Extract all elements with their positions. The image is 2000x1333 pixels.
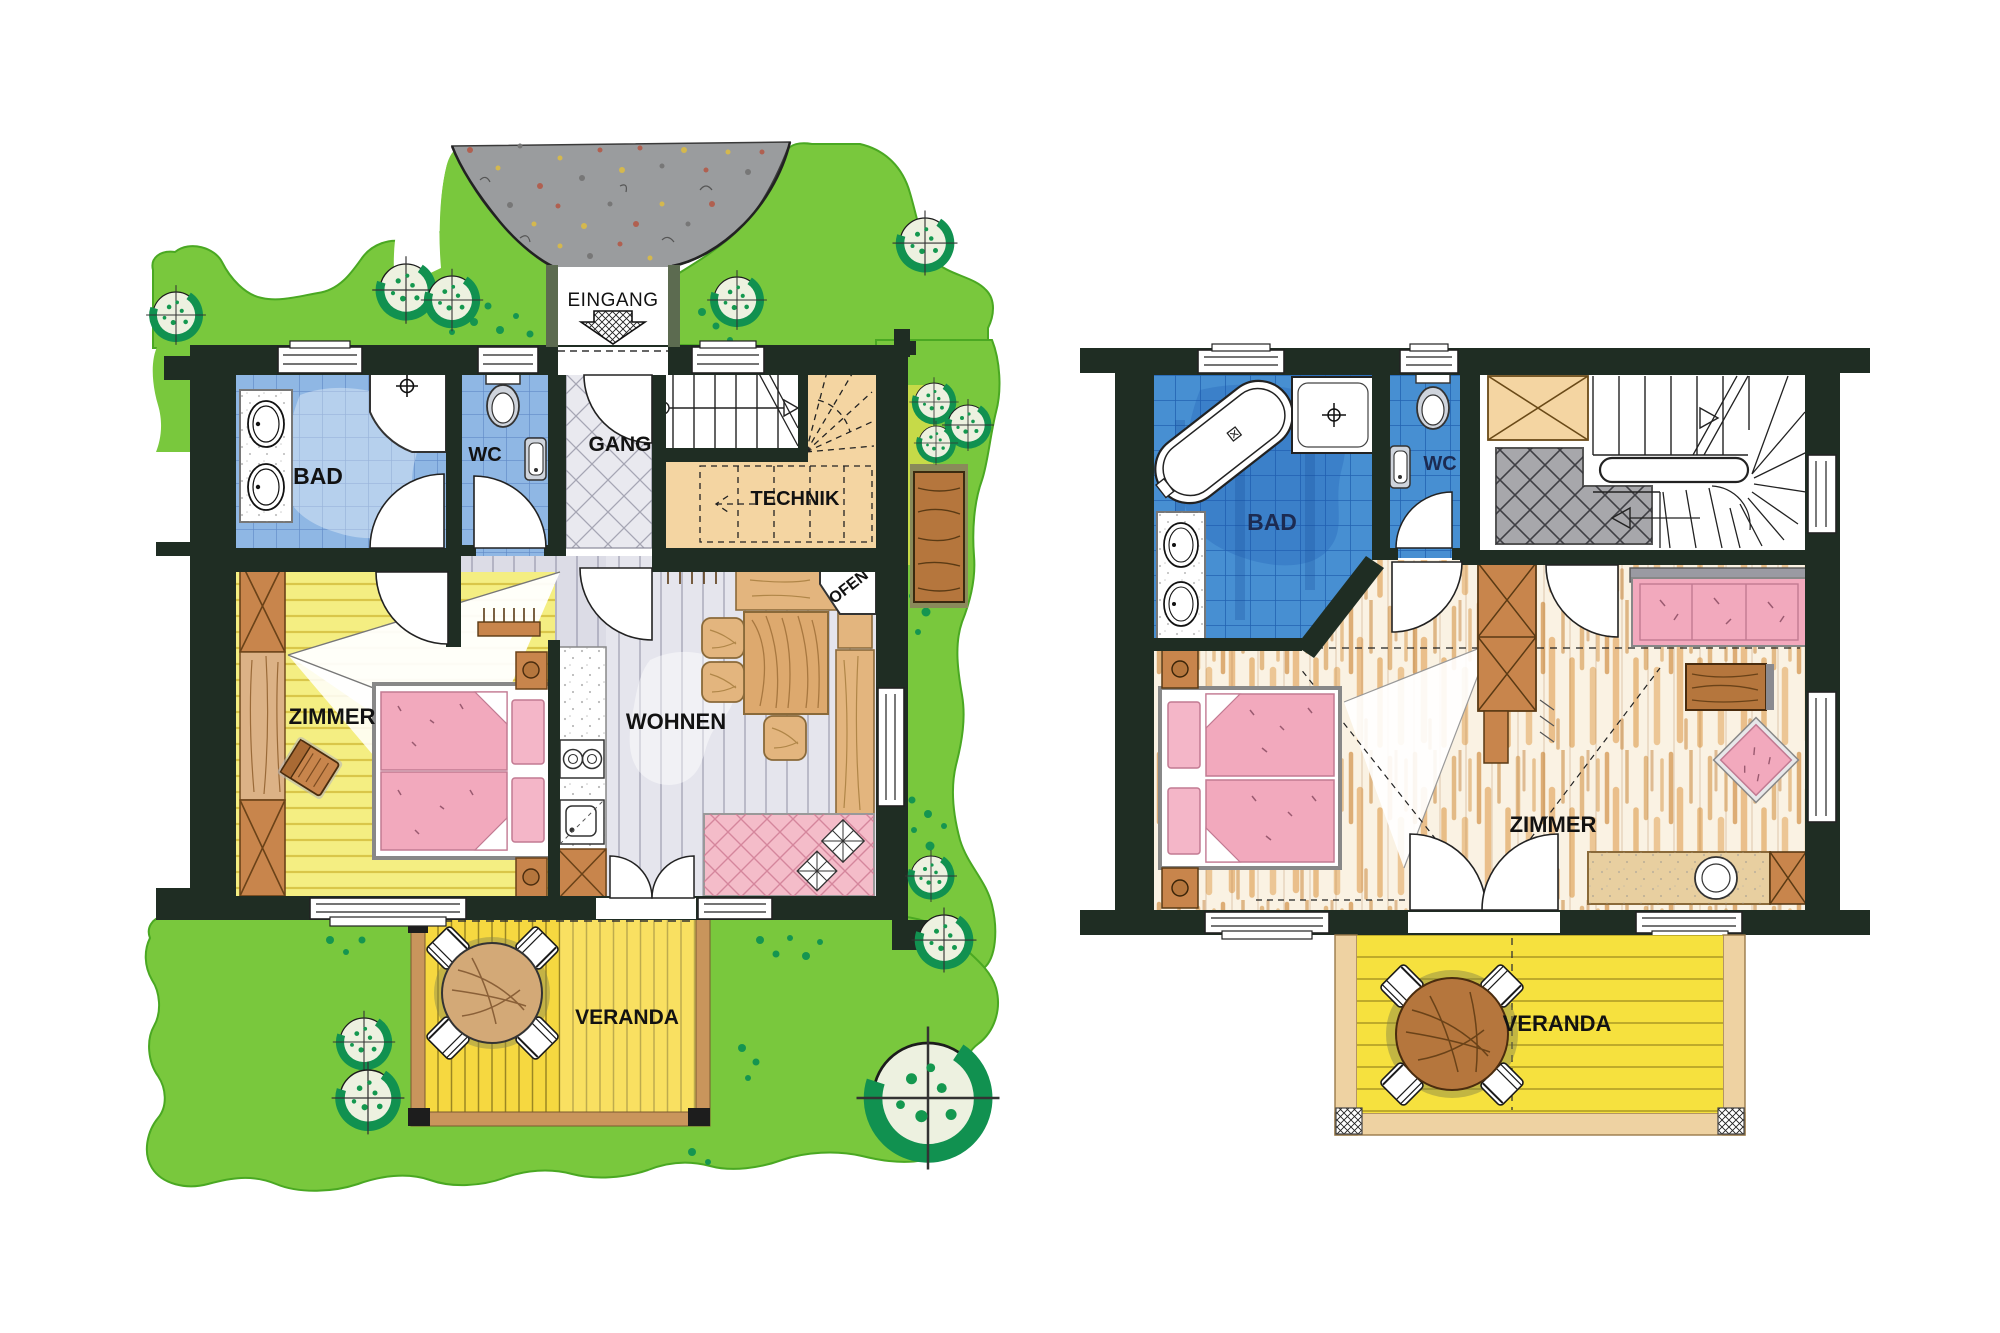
svg-text:WC: WC [1423, 453, 1456, 475]
svg-text:VERANDA: VERANDA [575, 1006, 679, 1029]
svg-text:WOHNEN: WOHNEN [626, 709, 726, 734]
svg-text:EINGANG: EINGANG [567, 290, 658, 311]
svg-text:BAD: BAD [1247, 509, 1297, 535]
svg-text:VERANDA: VERANDA [1503, 1011, 1612, 1036]
svg-text:BAD: BAD [293, 463, 343, 489]
svg-text:GANG: GANG [589, 433, 652, 456]
svg-text:ZIMMER: ZIMMER [289, 704, 376, 729]
svg-text:WC: WC [468, 444, 501, 466]
svg-text:ZIMMER: ZIMMER [1510, 812, 1597, 837]
svg-text:TECHNIK: TECHNIK [751, 488, 840, 510]
